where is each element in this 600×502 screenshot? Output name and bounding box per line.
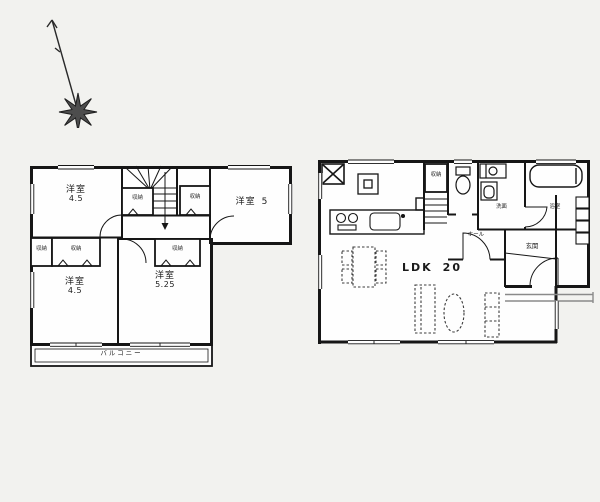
floorplan-1f-drawing [318, 155, 595, 350]
room-name: LDK [402, 262, 433, 274]
floorplan-1f: LDK 20 収納 洗面 浴室 ホール 玄関 [318, 155, 595, 350]
balcony-label: バルコニー [70, 350, 173, 357]
floorplan-2f: 洋室 4.5 洋室 5 洋室 4.5 洋室 5.25 収納 収納 収納 収納 収… [30, 160, 293, 370]
closet-label: 収納 [182, 194, 209, 200]
room-size: 5 [262, 198, 269, 207]
room-size: 4.5 [68, 287, 82, 295]
north-arrow-icon [30, 8, 126, 128]
closet-label: 収納 [32, 246, 51, 252]
washroom-label: 洗面 [480, 204, 522, 210]
closet-label: 収納 [157, 246, 198, 252]
room-name: 洋室 [236, 198, 256, 207]
room-label-2f-top-left: 洋室 4.5 [44, 186, 108, 204]
compass [30, 8, 126, 128]
room-label-2f-bottom-right: 洋室 5.25 [130, 272, 200, 290]
closet-label: 収納 [426, 172, 446, 178]
bath-label: 浴室 [531, 204, 580, 210]
floorplan-canvas: 洋室 4.5 洋室 5 洋室 4.5 洋室 5.25 収納 収納 収納 収納 収… [0, 0, 600, 502]
room-label-2f-bottom-left: 洋室 4.5 [40, 278, 110, 296]
room-label-ldk: LDK 20 [396, 262, 468, 274]
hall-label: ホール [458, 232, 494, 238]
closet-label: 収納 [124, 195, 152, 201]
closet-label: 収納 [54, 246, 97, 252]
entrance-label: 玄関 [516, 243, 548, 250]
room-label-2f-top-right: 洋室 5 [218, 198, 286, 207]
compass-star [59, 93, 97, 128]
closet-box-1f [425, 164, 447, 192]
room-size: 5.25 [155, 281, 175, 289]
room-size: 20 [443, 262, 462, 274]
room-size: 4.5 [69, 195, 83, 203]
